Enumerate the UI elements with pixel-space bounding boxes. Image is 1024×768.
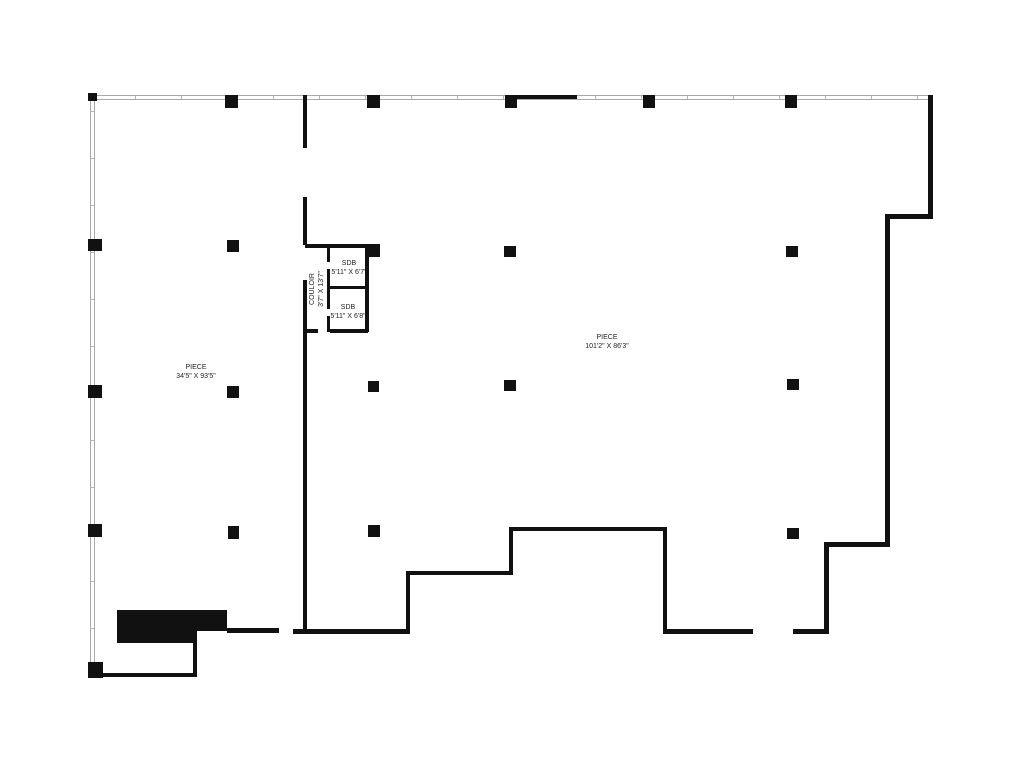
room-label-sdb-bottom: SDB 5'11" X 6'8": [318, 304, 378, 322]
column: [504, 380, 516, 391]
column: [368, 381, 379, 392]
wall-divider-top: [303, 95, 307, 148]
room-label-couloir: COULOIR 3'7" X 13'7": [309, 259, 325, 319]
column: [368, 525, 380, 537]
column: [785, 95, 797, 108]
room-name: COULOIR: [309, 259, 318, 319]
wall-bottom-seg-right: [793, 629, 829, 634]
wall-extension-bottom: [90, 673, 197, 677]
wall-bottom-seg-2: [663, 629, 753, 634]
room-dimensions: 5'11" X 6'8": [318, 313, 378, 322]
room-name: PIECE: [146, 364, 246, 373]
room-dimensions: 34'5" X 93'5": [146, 373, 246, 382]
wall-bottom-seg-3: [305, 629, 408, 634]
wall-bump-step-vertical: [509, 527, 513, 575]
column: [225, 95, 238, 108]
wall-right-jog-2: [826, 542, 890, 547]
column: [787, 379, 799, 390]
wall-bump-left-vertical: [406, 571, 410, 634]
column: [787, 528, 799, 539]
wall-right-upper: [928, 95, 933, 219]
room-name: PIECE: [557, 334, 657, 343]
wall-bottom-left-room: [227, 628, 279, 633]
column: [643, 95, 655, 108]
floor-plan: PIECE 34'5" X 93'5" PIECE 101'2" X 86'3"…: [0, 0, 1024, 768]
column: [367, 95, 380, 108]
wall-right-lower: [824, 542, 829, 634]
wall-right-jog-1: [887, 214, 933, 219]
wall-extension-right: [193, 643, 197, 677]
column: [227, 240, 239, 252]
column: [88, 239, 102, 251]
room-dimensions: 3'7" X 13'7": [318, 259, 327, 319]
column: [88, 662, 103, 678]
wall-bump-right-vertical: [663, 529, 667, 634]
wall-right-mid: [885, 214, 890, 547]
wall-divider-mid: [303, 197, 307, 245]
wall-bump-top: [511, 527, 667, 531]
wall-sdb-divider: [328, 286, 368, 289]
room-label-sdb-top: SDB 5'11" X 6'7": [319, 260, 379, 278]
room-label-piece-left: PIECE 34'5" X 93'5": [146, 364, 246, 382]
column: [88, 385, 102, 398]
room-dimensions: 101'2" X 86'3": [557, 343, 657, 352]
wall-sdb-top: [305, 244, 369, 248]
column: [504, 246, 516, 257]
wall-top-thick-segment: [511, 95, 577, 99]
wall-sdb-bottom-1: [305, 329, 318, 333]
column: [88, 524, 102, 537]
column: [228, 526, 239, 539]
column: [505, 95, 517, 108]
room-name: SDB: [318, 304, 378, 313]
stairs-block-lower: [117, 631, 197, 643]
stairs-block: [117, 610, 227, 631]
room-name: SDB: [319, 260, 379, 269]
wall-bump-step-horizontal: [408, 571, 513, 575]
column: [786, 246, 798, 257]
wall-sdb-bottom-2: [330, 329, 368, 333]
room-dimensions: 5'11" X 6'7": [319, 269, 379, 278]
room-label-piece-right: PIECE 101'2" X 86'3": [557, 334, 657, 352]
column: [227, 386, 239, 398]
column: [88, 93, 97, 101]
column: [367, 244, 380, 257]
